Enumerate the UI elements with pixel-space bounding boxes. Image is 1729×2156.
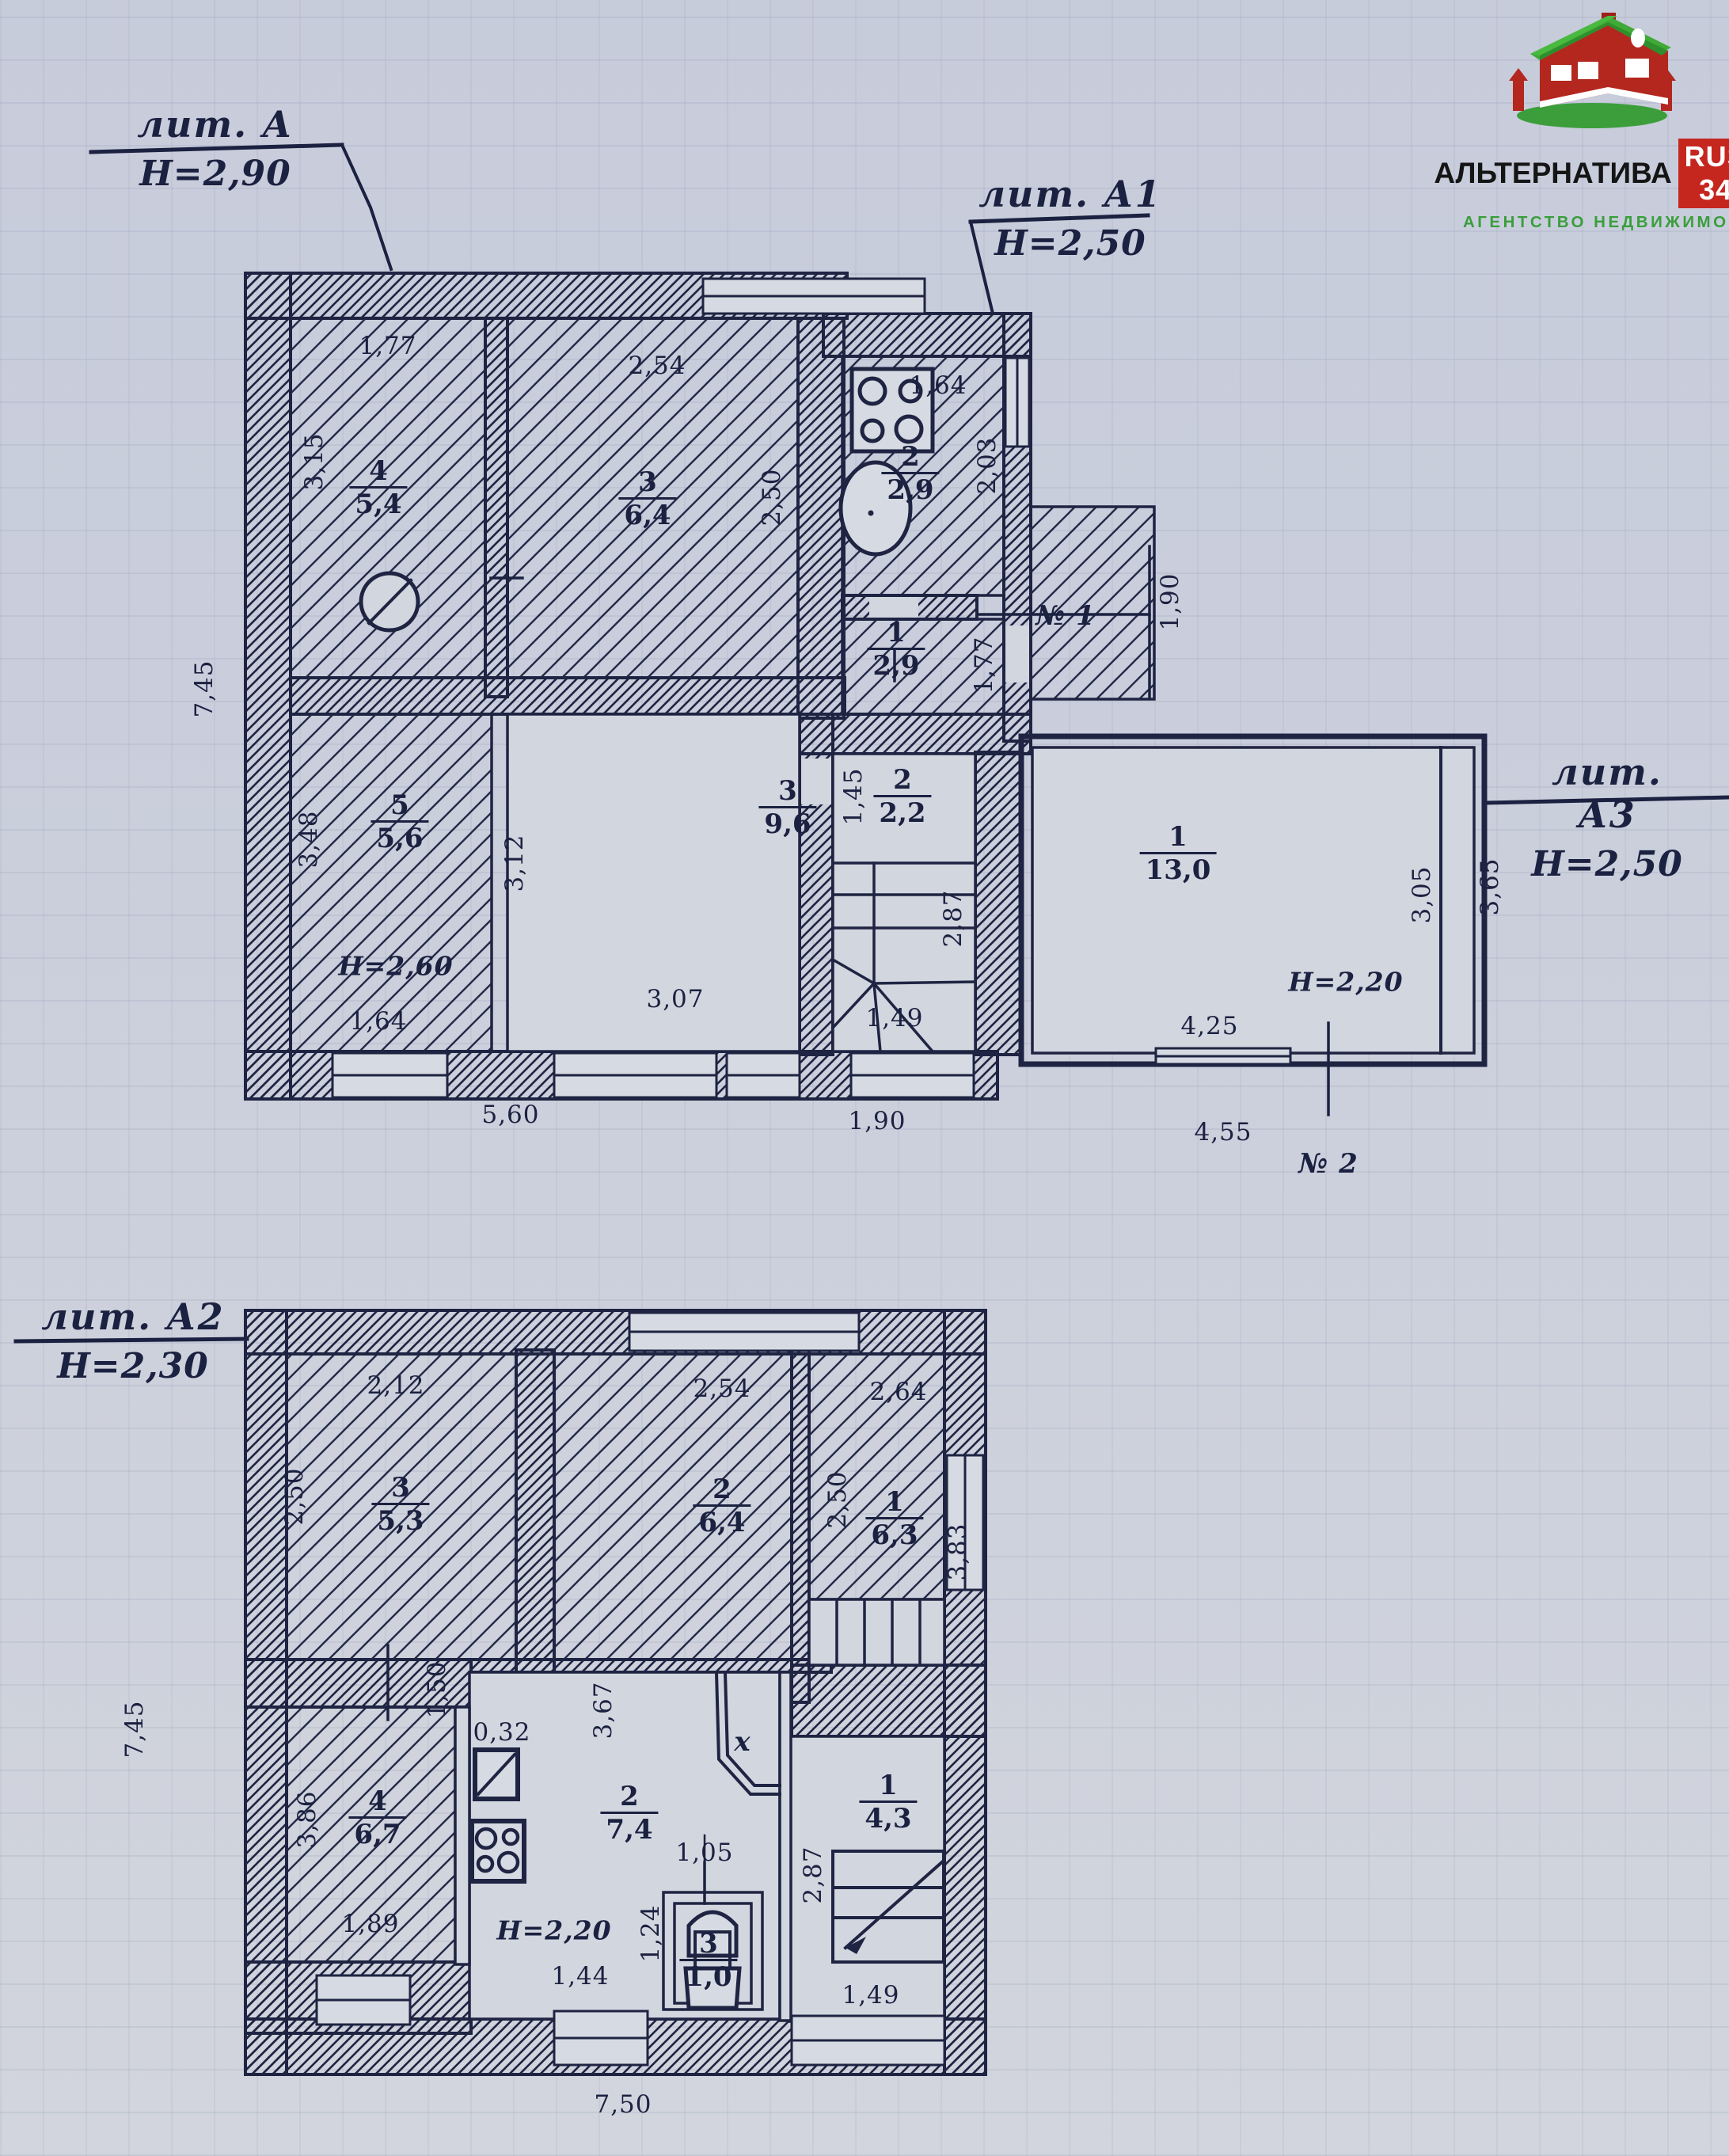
dim-label: 2,50 <box>280 1467 309 1525</box>
room-number: 1 <box>1140 823 1217 852</box>
callout-height: Н=2,90 <box>137 154 293 194</box>
callout-title: лит. А1 <box>978 173 1161 215</box>
dim-label: 3,15 <box>300 432 329 490</box>
room-label-upper-1: 12,9 <box>867 619 925 680</box>
room-area: 6,7 <box>348 1816 406 1850</box>
dim-label: 1,44 <box>551 1962 609 1991</box>
room-number: 3 <box>679 1930 737 1959</box>
logo-subtitle: АГЕНТСТВО НЕДВИЖИМОСТИ <box>1463 213 1724 232</box>
dim-label: х <box>734 1726 750 1758</box>
room-area: 5,3 <box>371 1503 429 1536</box>
room-label-upper-1: 113,0 <box>1140 823 1217 884</box>
dim-label: 1,24 <box>636 1904 665 1962</box>
room-label-upper-5: 55,6 <box>370 792 428 853</box>
room-label-upper-4: 45,4 <box>349 458 407 519</box>
callout-title: лит. А3 <box>1531 751 1683 836</box>
dim-label: 1,49 <box>865 1004 923 1032</box>
room-area: 2,9 <box>867 648 925 681</box>
logo-name: АЛЬТЕРНАТИВА <box>1434 157 1671 190</box>
room-area: 6,4 <box>693 1504 750 1538</box>
room-label-lower-1: 16,3 <box>865 1489 923 1550</box>
dim-label: 3,07 <box>646 985 704 1013</box>
dim-label: 2,03 <box>973 436 1001 494</box>
room-area: 9,6 <box>758 806 816 839</box>
room-number: 2 <box>693 1476 750 1504</box>
room-number: 2 <box>600 1783 658 1812</box>
dim-label: 2,54 <box>628 352 686 380</box>
dim-label: 7,45 <box>120 1700 149 1758</box>
room-label-lower-3: 35,3 <box>371 1474 429 1535</box>
dim-label: 1,90 <box>1156 572 1184 630</box>
room-label-lower-4: 46,7 <box>348 1788 406 1849</box>
dim-label: 7,45 <box>190 660 218 717</box>
agency-logo: АЛЬТЕРНАТИВА RUS 34 АГЕНТСТВО НЕДВИЖИМОС… <box>1463 6 1724 232</box>
dim-label: 3,67 <box>589 1681 617 1739</box>
dim-label: 1,89 <box>341 1910 399 1938</box>
room-label-lower-1: 14,3 <box>859 1772 917 1833</box>
room-label-upper-3: 36,4 <box>618 469 676 530</box>
room-area: 6,3 <box>865 1517 923 1550</box>
dim-label: 1,90 <box>848 1107 906 1135</box>
dim-label: 3,12 <box>500 834 529 892</box>
callout-height: Н=2,50 <box>978 223 1161 264</box>
room-number: 4 <box>348 1788 406 1816</box>
dim-label: 2,50 <box>758 468 786 526</box>
room-label-lower-2: 27,4 <box>600 1783 658 1844</box>
dim-label: 2,87 <box>939 889 967 947</box>
dim-label: Н=2,20 <box>496 1915 611 1946</box>
room-area: 1,0 <box>679 1959 737 1992</box>
room-area: 4,3 <box>859 1800 917 1834</box>
room-label-lower-2: 26,4 <box>693 1476 750 1537</box>
room-area: 5,6 <box>370 820 428 854</box>
dim-label: Н=2,20 <box>1288 967 1403 998</box>
room-number: 1 <box>859 1772 917 1800</box>
dim-label: 2,50 <box>823 1470 852 1528</box>
dim-label: 2,87 <box>799 1846 827 1903</box>
room-number: 3 <box>371 1474 429 1503</box>
logo-badge: RUS 34 <box>1678 139 1729 208</box>
dim-label: 1,49 <box>842 1981 899 2010</box>
dim-label: 4,25 <box>1180 1012 1238 1040</box>
dim-label: 2,64 <box>869 1378 927 1406</box>
dim-label: 1,77 <box>359 332 416 360</box>
room-area: 7,4 <box>600 1812 658 1845</box>
dim-label: 7,50 <box>594 2090 652 2119</box>
dim-label: № 1 <box>1035 600 1095 632</box>
room-number: 1 <box>865 1489 923 1517</box>
dim-label: 3,48 <box>294 810 323 868</box>
dim-label: 2,12 <box>367 1371 424 1400</box>
dim-label: 5,60 <box>481 1101 539 1129</box>
callout-lit-a1: лит. А1 Н=2,50 <box>978 173 1161 264</box>
room-area: 13,0 <box>1140 852 1217 885</box>
dim-label: 0,32 <box>473 1718 530 1747</box>
room-number: 2 <box>881 443 939 472</box>
dim-label: 3,65 <box>1476 857 1504 915</box>
dim-label: 3,86 <box>293 1790 321 1848</box>
floor-plan-sheet: 45,436,422,912,955,639,622,2113,035,326,… <box>0 0 1729 2156</box>
callout-title: лит. А <box>137 103 293 146</box>
callout-lit-a: лит. А Н=2,90 <box>137 103 293 194</box>
room-area: 2,2 <box>873 795 931 828</box>
room-number: 3 <box>758 778 816 806</box>
dim-label: 1,77 <box>970 636 998 694</box>
callout-height: Н=2,50 <box>1531 844 1683 884</box>
room-number: 2 <box>873 766 931 795</box>
house-logo-icon <box>1499 6 1689 133</box>
room-number: 1 <box>867 619 925 648</box>
dim-label: 3,05 <box>1408 865 1436 923</box>
dim-label: 1,64 <box>909 371 967 400</box>
dim-label: 3,83 <box>944 1523 972 1580</box>
dim-label: 4,55 <box>1194 1118 1252 1146</box>
dim-label: 2,54 <box>693 1375 750 1403</box>
room-number: 4 <box>349 458 407 486</box>
dim-label: № 2 <box>1298 1148 1358 1180</box>
dim-label: 1,45 <box>839 767 868 825</box>
room-number: 3 <box>618 469 676 497</box>
room-label-upper-3: 39,6 <box>758 778 816 838</box>
dim-label: 1,64 <box>349 1007 407 1036</box>
callout-height: Н=2,30 <box>41 1346 224 1386</box>
callout-title: лит. А2 <box>41 1295 224 1338</box>
room-area: 2,9 <box>881 472 939 505</box>
room-area: 5,4 <box>349 486 407 519</box>
callout-lit-a2: лит. А2 Н=2,30 <box>41 1295 224 1386</box>
label-layer: 45,436,422,912,955,639,622,2113,035,326,… <box>0 0 1729 2156</box>
dim-label: 1,05 <box>675 1838 733 1867</box>
dim-label: 1,50 <box>423 1660 451 1718</box>
room-label-upper-2: 22,2 <box>873 766 931 827</box>
room-label-upper-2: 22,9 <box>881 443 939 504</box>
callout-lit-a3: лит. А3 Н=2,50 <box>1531 751 1683 884</box>
room-number: 5 <box>370 792 428 820</box>
room-label-lower-3: 31,0 <box>679 1930 737 1991</box>
room-area: 6,4 <box>618 497 676 530</box>
dim-label: Н=2,60 <box>338 951 453 982</box>
